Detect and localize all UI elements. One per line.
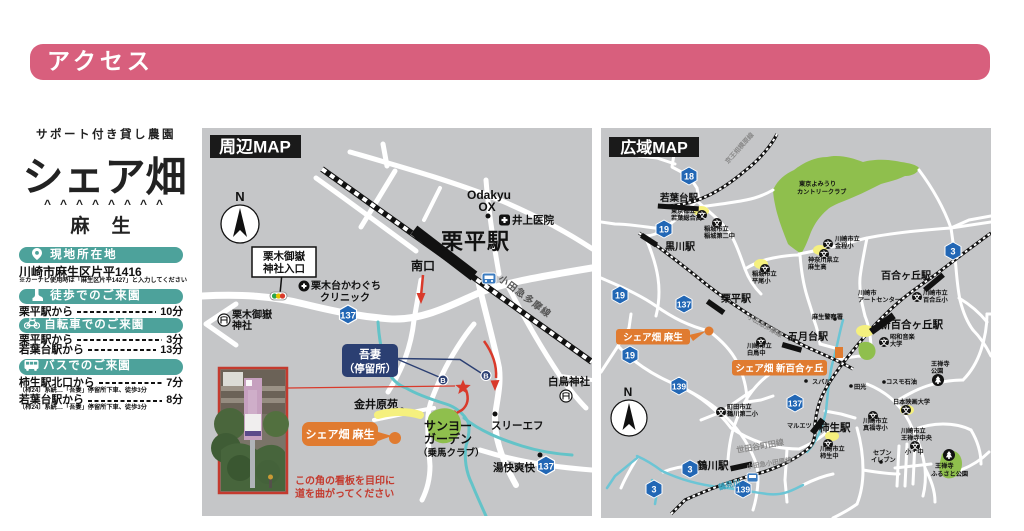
svg-text:サンヨー: サンヨー [424,419,472,433]
svg-text:昭和音楽: 昭和音楽 [890,333,916,341]
svg-text:川崎市立: 川崎市立 [900,427,926,435]
svg-text:川崎市立: 川崎市立 [922,289,948,297]
svg-text:小・中: 小・中 [904,448,924,456]
svg-text:川崎市立: 川崎市立 [746,342,772,350]
svg-text:139: 139 [672,382,686,392]
svg-text:麻生高: 麻生高 [807,263,827,271]
svg-text:OX: OX [478,200,495,214]
svg-text:スリーエフ: スリーエフ [491,420,544,432]
svg-text:田光: 田光 [854,383,867,391]
svg-text:スバル: スバル [812,378,831,386]
svg-text:ガーデン: ガーデン [424,431,472,446]
svg-text:137: 137 [677,300,691,310]
svg-text:N: N [235,189,244,204]
svg-text:シェア畑 麻生: シェア畑 麻生 [623,332,683,344]
svg-text:B: B [440,376,446,385]
svg-text:19: 19 [659,225,669,235]
svg-text:鶴川第二小: 鶴川第二小 [727,410,759,418]
svg-text:若葉総合高: 若葉総合高 [670,214,702,222]
svg-text:百合丘小: 百合丘小 [923,296,949,304]
svg-text:稲城第二中: 稲城第二中 [704,232,735,240]
svg-text:川崎市立: 川崎市立 [862,417,888,425]
svg-text:栗平駅: 栗平駅 [441,229,510,254]
svg-text:金程小: 金程小 [834,242,854,250]
svg-text:鶴川駅: 鶴川駅 [697,459,729,472]
svg-text:コスモ石油: コスモ石油 [886,378,917,386]
svg-text:カントリークラブ: カントリークラブ [797,188,847,196]
svg-text:神社入口: 神社入口 [263,262,305,275]
svg-text:王禅寺中央: 王禅寺中央 [901,434,933,442]
svg-text:王禅寺: 王禅寺 [931,360,950,368]
svg-text:セブン: セブン [873,449,892,457]
svg-text:栗木御嶽: 栗木御嶽 [232,308,273,321]
svg-text:若葉台駅: 若葉台駅 [659,192,699,204]
svg-text:文: 文 [902,405,910,415]
svg-text:栗平駅: 栗平駅 [721,293,752,305]
svg-text:19: 19 [615,291,625,301]
svg-text:周辺MAP: 周辺MAP [219,138,291,157]
svg-text:文: 文 [717,407,725,417]
svg-text:シェア畑 麻生: シェア畑 麻生 [305,427,374,441]
svg-text:文: 文 [880,337,888,347]
svg-text:ふるさと公園: ふるさと公園 [931,470,968,478]
svg-text:大学: 大学 [890,340,902,348]
svg-text:黒川駅: 黒川駅 [665,241,696,253]
svg-text:神奈川県立: 神奈川県立 [808,256,839,264]
svg-text:白鳥中: 白鳥中 [747,349,766,357]
svg-text:18: 18 [684,172,694,182]
svg-text:（停留所）: （停留所） [344,362,397,375]
svg-text:B: B [483,372,489,381]
svg-text:柿生駅: 柿生駅 [819,421,851,434]
svg-text:広域MAP: 広域MAP [620,138,688,157]
svg-text:3: 3 [687,465,692,475]
svg-text:川崎市: 川崎市 [857,289,877,297]
svg-text:五月台駅: 五月台駅 [788,330,829,343]
svg-text:文: 文 [824,239,832,249]
svg-text:栗木御嶽: 栗木御嶽 [263,250,305,263]
svg-text:南口: 南口 [411,258,435,273]
svg-text:この角の看板を目印に: この角の看板を目印に [295,474,395,487]
svg-text:湯快爽快: 湯快爽快 [493,461,535,474]
svg-text:百合ヶ丘駅: 百合ヶ丘駅 [881,269,932,282]
svg-text:井上医院: 井上医院 [512,214,554,227]
svg-text:平尾小: 平尾小 [752,277,771,285]
svg-text:マルエツ: マルエツ [787,423,812,430]
svg-text:137: 137 [788,399,802,409]
svg-text:王禅寺: 王禅寺 [935,462,954,470]
svg-text:イレブン: イレブン [871,456,896,464]
svg-text:川崎市立: 川崎市立 [834,235,860,243]
svg-text:公園: 公園 [931,367,943,375]
svg-text:N: N [624,385,633,399]
svg-text:稲城市立: 稲城市立 [704,225,729,233]
svg-text:真福寺小: 真福寺小 [863,424,889,432]
svg-text:吾妻: 吾妻 [359,347,381,361]
svg-text:3: 3 [950,247,955,257]
svg-text:（乗馬クラブ）: （乗馬クラブ） [418,447,485,459]
svg-text:麻生警察署: 麻生警察署 [811,313,843,321]
svg-text:3: 3 [651,485,656,495]
svg-text:川崎市立: 川崎市立 [819,445,845,453]
svg-text:東京都立: 東京都立 [671,207,696,215]
svg-text:クリニック: クリニック [320,292,370,304]
svg-text:神社: 神社 [232,319,252,332]
svg-text:シェア畑 新百合ヶ丘: シェア畑 新百合ヶ丘 [735,363,824,375]
svg-text:アートセンター: アートセンター [858,296,901,304]
svg-text:白鳥神社: 白鳥神社 [548,375,590,388]
svg-text:137: 137 [340,311,356,322]
svg-text:稲城市立: 稲城市立 [752,270,777,278]
svg-text:東京よみうり: 東京よみうり [799,180,836,188]
svg-text:栗木台かわぐち: 栗木台かわぐち [311,279,381,292]
svg-text:文: 文 [913,292,921,302]
svg-text:町田市立: 町田市立 [727,403,752,411]
svg-text:新百合ヶ丘駅: 新百合ヶ丘駅 [880,318,943,331]
svg-text:137: 137 [538,462,554,473]
svg-text:日本映画大学: 日本映画大学 [893,398,930,406]
svg-text:19: 19 [625,351,635,361]
svg-text:道を曲がってください: 道を曲がってください [295,487,394,500]
svg-text:柿生中: 柿生中 [820,452,839,460]
